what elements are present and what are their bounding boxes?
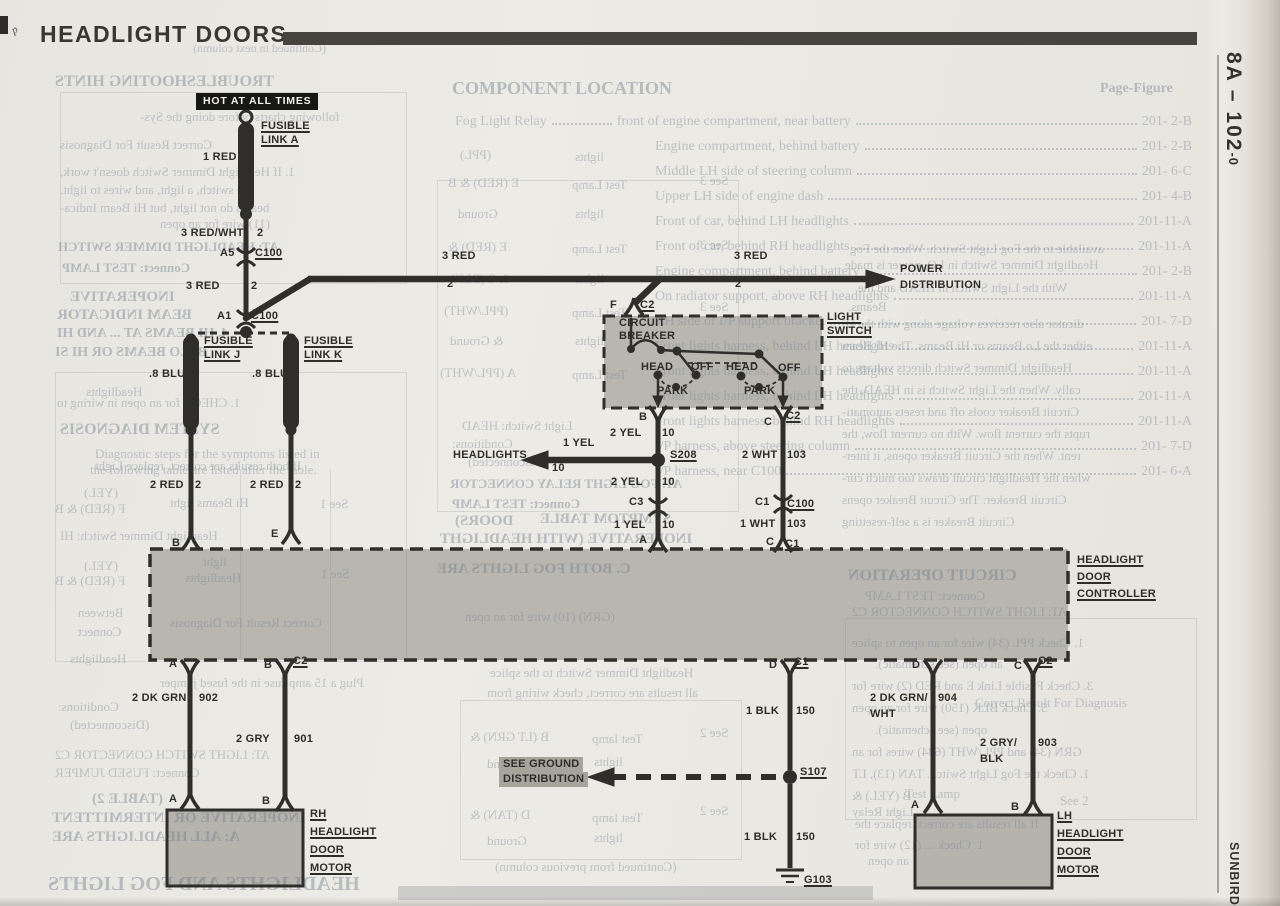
component-location-row: Fog Light Relayfront of engine compartme… <box>455 114 1192 130</box>
splice-s107-label: S107 <box>800 766 827 778</box>
connector-c100-label: C100 <box>255 247 282 259</box>
switch-pos-off: OFF <box>691 361 714 373</box>
connector-c1-label: C1 <box>785 538 800 550</box>
circuit-number: 904 <box>938 692 957 704</box>
connector-c2-label: C2 <box>293 655 308 667</box>
rh-motor-label: RH <box>310 808 326 820</box>
circuit-number: 103 <box>787 449 806 461</box>
circuit-number: 10 <box>552 462 565 474</box>
pin-c: C <box>766 536 774 548</box>
component-location-row: Front lights harness, behind LH headligh… <box>655 389 1192 405</box>
see-ground-label2: DISTRIBUTION <box>499 772 588 787</box>
component-location-row: I/P harness, near C100201- 6-A <box>655 464 1192 480</box>
rh-motor-label2: HEADLIGHT <box>310 826 376 838</box>
wire-label-8blu: .8 BLU <box>252 368 288 380</box>
power-distribution-label: POWER <box>900 263 943 275</box>
pin-a: A <box>169 658 177 670</box>
circuit-breaker-label: CIRCUIT <box>619 317 665 329</box>
wire-label-3redwht: 3 RED/WHT <box>181 227 244 239</box>
hot-at-all-times-label: HOT AT ALL TIMES <box>196 93 318 110</box>
pin-e: E <box>271 528 279 540</box>
pin-b: B <box>262 795 270 807</box>
circuit-number: 10 <box>662 427 675 439</box>
circuit-number: 150 <box>796 831 815 843</box>
gauge-label: 2 <box>257 227 263 239</box>
pin-a: A <box>639 534 647 546</box>
wire-label-1yel: 1 YEL <box>563 437 595 449</box>
circuit-number: 103 <box>787 518 806 530</box>
component-location-row: RH side of I/P support bracket201- 7-D <box>655 314 1192 330</box>
component-location-row: Engine compartment, behind battery201- 2… <box>655 139 1192 155</box>
scan-edge-mark <box>0 16 8 34</box>
circuit-number: 903 <box>1038 737 1057 749</box>
wire-label-3red: 3 RED <box>186 280 220 292</box>
controller-label2: DOOR <box>1077 571 1111 583</box>
circuit-number: 150 <box>796 705 815 717</box>
switch-pos-head: HEAD <box>641 361 673 373</box>
pin-c1: C1 <box>755 496 770 508</box>
pin-a: A <box>911 799 919 811</box>
see-ground-label: SEE GROUND <box>499 757 583 772</box>
wire-label-2red: 2 RED <box>150 479 184 491</box>
rh-motor-label3: DOOR <box>310 844 344 856</box>
component-location-row: Front lights harness, behind RH headligh… <box>655 414 1192 430</box>
fusible-link-j-label: FUSIBLE <box>204 335 253 347</box>
pin-a5: A5 <box>220 247 235 259</box>
wire-label-2gry: 2 GRY <box>236 733 270 745</box>
wire-label-2yel: 2 YEL <box>610 427 642 439</box>
wire-label-2wht: 2 WHT <box>742 449 777 461</box>
wire-label-2dkgrn: 2 DK GRN <box>132 692 187 704</box>
switch-pos-off: OFF <box>778 362 801 374</box>
component-location-ghost: COMPONENT LOCATION Page-Figure Fog Light… <box>0 0 1280 906</box>
wire-label-1blk: 1 BLK <box>746 705 779 717</box>
gauge-label: 2 <box>195 479 201 491</box>
rh-motor-label4: MOTOR <box>310 862 352 874</box>
gauge-label: 2 <box>735 278 741 290</box>
connector-c1-label: C1 <box>794 656 809 668</box>
pin-b: B <box>1011 801 1019 813</box>
ground-g103-label: G103 <box>804 874 832 886</box>
component-location-title: COMPONENT LOCATION <box>452 78 672 99</box>
wire-label-2dkgrnwht2: WHT <box>870 708 896 720</box>
wire-label-1wht: 1 WHT <box>740 518 775 530</box>
component-location-row: On radiator support, above RH headlights… <box>655 289 1192 305</box>
wire-label-2dkgrnwht: 2 DK GRN/ <box>870 692 928 704</box>
circuit-number: 901 <box>294 733 313 745</box>
light-switch-label: LIGHT <box>827 311 861 323</box>
controller-label: HEADLIGHT <box>1077 554 1143 566</box>
gauge-label: 2 <box>447 278 453 290</box>
component-location-row: Upper LH side of engine dash201- 4-B <box>655 189 1192 205</box>
light-switch-label2: SWITCH <box>827 325 872 337</box>
component-location-row: Middle LH side of steering column201- 6-… <box>655 164 1192 180</box>
component-location-row: I/P harness, above steering column201- 7… <box>655 439 1192 455</box>
connector-c2-label: C2 <box>640 299 655 311</box>
page-number: 8A – 102-0 <box>1221 52 1245 166</box>
wire-label-2yel: 2 YEL <box>611 476 643 488</box>
page-number-main: 8A – 102 <box>1222 52 1245 152</box>
title-bar-rule <box>283 32 1197 45</box>
pin-d: D <box>769 659 777 671</box>
fusible-link-k-label: FUSIBLE <box>304 335 353 347</box>
gauge-label: 2 <box>295 479 301 491</box>
gauge-label: 2 <box>251 280 257 292</box>
fusible-link-a-label2: LINK A <box>261 134 299 146</box>
page-number-suffix: -0 <box>1226 152 1241 166</box>
wire-label-3red: 3 RED <box>442 250 476 262</box>
pin-b: B <box>264 659 272 671</box>
connector-c100-label: C100 <box>787 498 814 510</box>
scan-bottom-shadow <box>0 897 1280 906</box>
splice-s208-label: S208 <box>670 449 697 461</box>
circuit-number: 10 <box>662 519 675 531</box>
circuit-number: 10 <box>662 476 675 488</box>
pin-a: A <box>169 793 177 805</box>
pin-b: B <box>639 411 647 423</box>
wire-label-2gryblk: 2 GRY/ <box>980 737 1017 749</box>
page-figure-label: Page-Figure <box>1100 81 1173 97</box>
pin-f: F <box>610 299 617 311</box>
switch-pos-park: PARK <box>657 385 688 397</box>
connector-c2-label: C2 <box>1038 655 1053 667</box>
wire-label-8blu: .8 BLU <box>149 368 185 380</box>
circuit-breaker-label2: BREAKER <box>619 330 675 342</box>
pin-c: C <box>1014 660 1022 672</box>
switch-pos-head: HEAD <box>726 361 758 373</box>
lh-motor-label3: DOOR <box>1057 846 1091 858</box>
connector-c2-label: C2 <box>786 410 801 422</box>
pin-c: C <box>764 416 772 428</box>
wire-label-2red: 2 RED <box>250 479 284 491</box>
pin-b: B <box>172 537 180 549</box>
wire-label-1yel: 1 YEL <box>614 519 646 531</box>
wire-label-2gryblk2: BLK <box>980 753 1003 765</box>
lh-motor-label4: MOTOR <box>1057 864 1099 876</box>
wire-label-1blk: 1 BLK <box>744 831 777 843</box>
margin-rule <box>1217 55 1219 893</box>
connector-c100-label: C100 <box>251 310 278 322</box>
wire-label-1red: 1 RED <box>203 151 237 163</box>
lh-motor-label2: HEADLIGHT <box>1057 828 1123 840</box>
fusible-link-j-label2: LINK J <box>204 349 240 361</box>
controller-label3: CONTROLLER <box>1077 588 1156 600</box>
pin-a1: A1 <box>217 310 232 322</box>
connector-c3-label: C3 <box>629 496 644 508</box>
component-location-row: Front lights harness, behind LH headligh… <box>655 339 1192 355</box>
switch-pos-park: PARK <box>744 385 775 397</box>
fusible-link-a-label: FUSIBLE <box>261 120 310 132</box>
wire-label-3red: 3 RED <box>734 250 768 262</box>
power-distribution-label2: DISTRIBUTION <box>900 279 981 291</box>
circuit-number: 902 <box>199 692 218 704</box>
page-title: HEADLIGHT DOORS <box>40 21 287 48</box>
fusible-link-k-label2: LINK K <box>304 349 342 361</box>
component-location-row: Front of car, behind LH headlights201-11… <box>655 214 1192 230</box>
headlights-label: HEADLIGHTS <box>453 449 527 461</box>
pin-d: D <box>912 659 920 671</box>
lh-motor-label: LH <box>1057 810 1072 822</box>
